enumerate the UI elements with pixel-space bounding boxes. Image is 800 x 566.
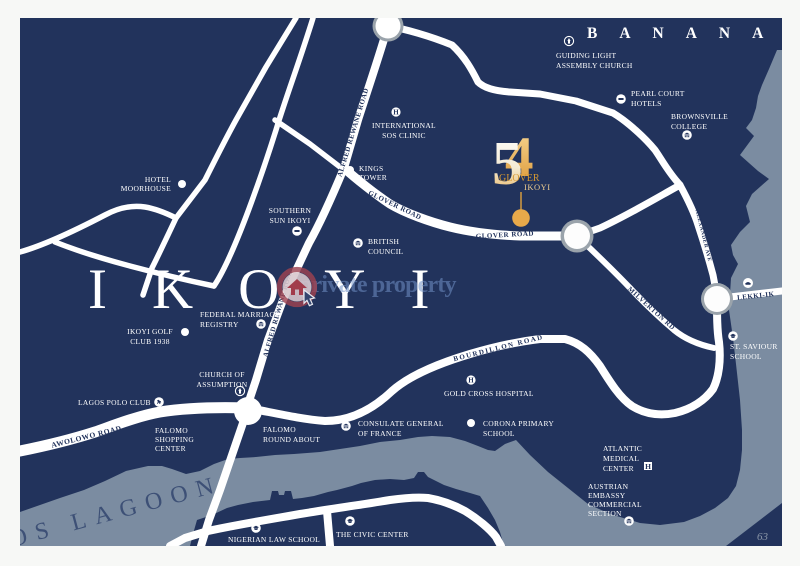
svg-text:CONSULATE GENERAL: CONSULATE GENERAL bbox=[358, 419, 444, 428]
svg-text:FALOMO: FALOMO bbox=[155, 426, 188, 435]
svg-text:IKOYI: IKOYI bbox=[524, 182, 551, 192]
svg-text:SCHOOL: SCHOOL bbox=[730, 352, 762, 361]
svg-text:ASSEMBLY CHURCH: ASSEMBLY CHURCH bbox=[556, 61, 633, 70]
svg-text:H: H bbox=[468, 377, 474, 385]
svg-text:PEARL COURT: PEARL COURT bbox=[631, 89, 685, 98]
svg-text:private property: private property bbox=[299, 272, 457, 298]
svg-text:SOS CLINIC: SOS CLINIC bbox=[382, 131, 426, 140]
svg-text:MEDICAL: MEDICAL bbox=[603, 454, 639, 463]
svg-text:COUNCIL: COUNCIL bbox=[368, 247, 404, 256]
svg-text:BANANA: BANANA bbox=[587, 25, 785, 42]
svg-text:MOORHOUSE: MOORHOUSE bbox=[121, 184, 171, 193]
svg-text:BRITISH: BRITISH bbox=[368, 237, 400, 246]
svg-text:COLLEGE: COLLEGE bbox=[671, 122, 707, 131]
svg-text:CORONA PRIMARY: CORONA PRIMARY bbox=[483, 419, 554, 428]
svg-text:NIGERIAN LAW SCHOOL: NIGERIAN LAW SCHOOL bbox=[228, 535, 320, 544]
svg-text:CENTER: CENTER bbox=[603, 464, 634, 473]
svg-text:H: H bbox=[645, 462, 651, 471]
svg-text:FEDERAL MARRIAGE: FEDERAL MARRIAGE bbox=[200, 310, 280, 319]
svg-text:EMBASSY: EMBASSY bbox=[588, 491, 626, 500]
svg-text:GOLD CROSS HOSPITAL: GOLD CROSS HOSPITAL bbox=[444, 389, 534, 398]
svg-text:BROWNSVILLE: BROWNSVILLE bbox=[671, 112, 728, 121]
svg-text:SOUTHERN: SOUTHERN bbox=[269, 206, 312, 215]
svg-text:SHOPPING: SHOPPING bbox=[155, 435, 194, 444]
svg-text:KINGS: KINGS bbox=[359, 164, 383, 173]
svg-text:INTERNATIONAL: INTERNATIONAL bbox=[372, 121, 436, 130]
svg-text:GUIDING LIGHT: GUIDING LIGHT bbox=[556, 51, 616, 60]
svg-text:LAGOS POLO CLUB: LAGOS POLO CLUB bbox=[78, 398, 151, 407]
svg-text:REGISTRY: REGISTRY bbox=[200, 320, 239, 329]
svg-text:TOWER: TOWER bbox=[359, 173, 387, 182]
svg-text:ROUND ABOUT: ROUND ABOUT bbox=[263, 435, 320, 444]
svg-text:SCHOOL: SCHOOL bbox=[483, 429, 515, 438]
svg-text:CENTER: CENTER bbox=[155, 444, 186, 453]
svg-text:HOTEL: HOTEL bbox=[145, 175, 171, 184]
svg-text:SUN IKOYI: SUN IKOYI bbox=[270, 216, 311, 225]
svg-text:CLUB 1938: CLUB 1938 bbox=[130, 337, 170, 346]
svg-text:THE CIVIC CENTER: THE CIVIC CENTER bbox=[336, 530, 409, 539]
svg-text:ATLANTIC: ATLANTIC bbox=[603, 444, 642, 453]
svg-text:COMMERCIAL: COMMERCIAL bbox=[588, 500, 642, 509]
svg-text:IKOYI GOLF: IKOYI GOLF bbox=[127, 327, 173, 336]
svg-text:AUSTRIAN: AUSTRIAN bbox=[588, 482, 629, 491]
svg-text:OF FRANCE: OF FRANCE bbox=[358, 429, 402, 438]
svg-text:5: 5 bbox=[492, 130, 523, 198]
svg-text:CHURCH OF: CHURCH OF bbox=[199, 370, 244, 379]
svg-text:HOTELS: HOTELS bbox=[631, 99, 662, 108]
svg-text:ST. SAVIOUR: ST. SAVIOUR bbox=[730, 342, 778, 351]
svg-text:H: H bbox=[393, 109, 399, 117]
svg-text:63: 63 bbox=[757, 531, 769, 543]
svg-text:FALOMO: FALOMO bbox=[263, 425, 296, 434]
svg-text:SECTION: SECTION bbox=[588, 509, 622, 518]
